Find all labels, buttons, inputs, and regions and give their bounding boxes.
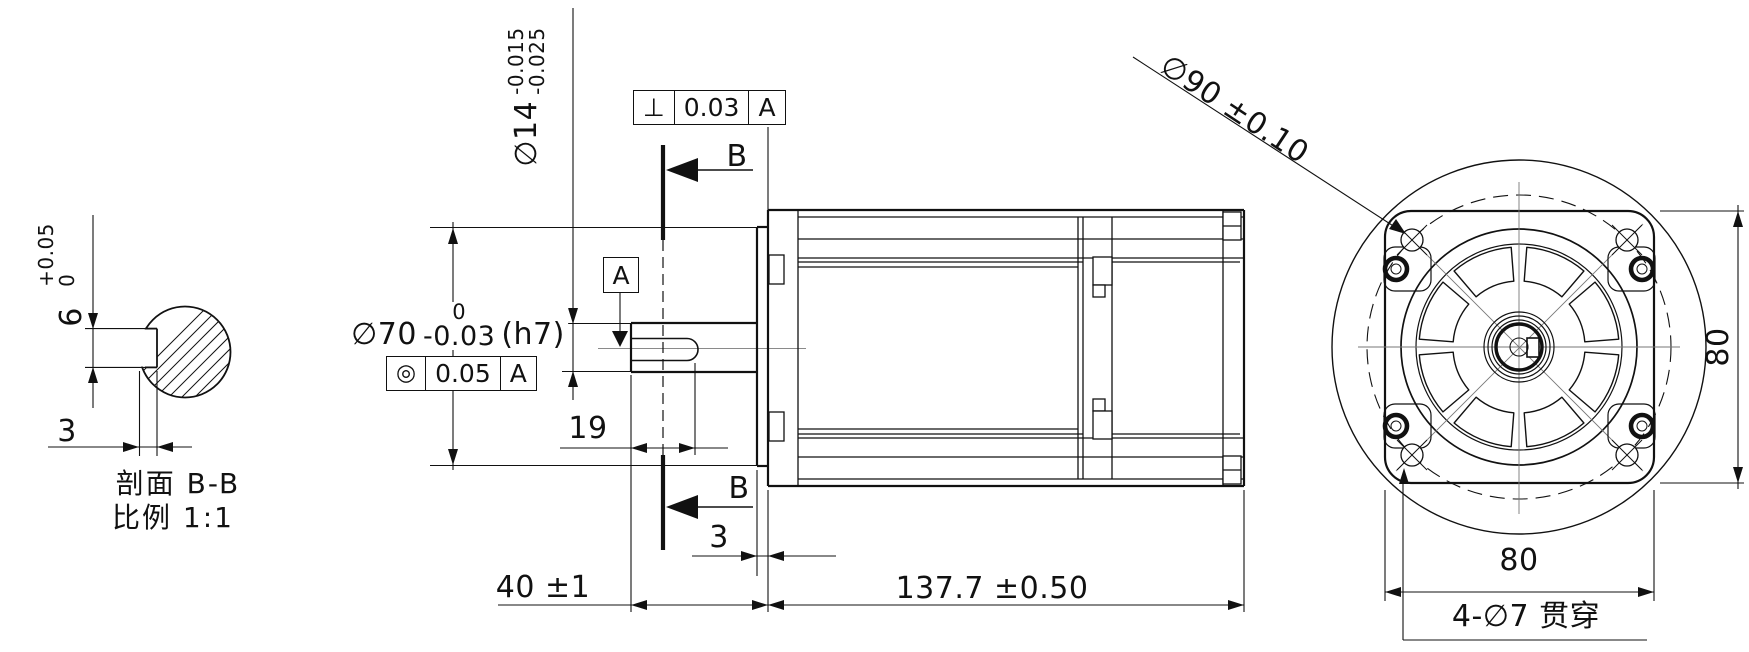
section-keyway-mask bbox=[110, 329, 157, 366]
flange-height-dim: 80 bbox=[1704, 327, 1734, 366]
shaft-length-dim: 40 ±1 bbox=[496, 573, 590, 603]
pilot-dia-fit: (h7) bbox=[501, 320, 565, 350]
section-scale: 比例 1:1 bbox=[112, 504, 234, 532]
tol-upper: -0.015 bbox=[506, 27, 527, 94]
tol-lower: -0.03 bbox=[423, 323, 495, 350]
shaft-dia-nominal: ∅14 bbox=[512, 101, 542, 167]
hub-keyway bbox=[1527, 338, 1539, 357]
drawing-linework bbox=[0, 0, 1749, 652]
pilot-dia-nominal: ∅70 bbox=[351, 320, 417, 350]
shaft-dia-dim: ∅14 -0.015 -0.025 bbox=[506, 27, 548, 166]
keyway-width-tolerance: +0.05 0 bbox=[36, 223, 78, 287]
concentricity-datum: A bbox=[501, 357, 536, 390]
mounting-holes-note: 4-∅7 贯穿 bbox=[1452, 602, 1600, 632]
shaft-outline bbox=[631, 323, 757, 372]
body-length-dim: 137.7 ±0.50 bbox=[896, 574, 1089, 604]
tol-lower: -0.025 bbox=[527, 27, 548, 94]
keyway-depth-dim: 3 bbox=[57, 417, 77, 447]
section-marker-bottom: B bbox=[728, 474, 749, 504]
concentricity-value: 0.05 bbox=[426, 357, 501, 390]
flange-width-dim: 80 bbox=[1499, 546, 1538, 576]
perpendicularity-value: 0.03 bbox=[675, 91, 750, 124]
perpendicularity-icon: ⊥ bbox=[634, 91, 675, 124]
concentricity-icon: ◎ bbox=[387, 357, 426, 390]
tol-lower: 0 bbox=[57, 274, 78, 287]
tol-upper: +0.05 bbox=[36, 223, 57, 287]
tol-upper: 0 bbox=[452, 302, 466, 323]
perpendicularity-datum: A bbox=[749, 91, 784, 124]
pilot-protrusion-dim: 3 bbox=[709, 523, 729, 553]
keyway-length-dim: 19 bbox=[568, 414, 607, 444]
datum-a-flag: A bbox=[603, 257, 639, 293]
keyway-width-dim: 6 bbox=[57, 307, 87, 327]
motor-body-outline bbox=[757, 210, 1244, 486]
motor-body-details bbox=[769, 210, 1244, 486]
concentricity-frame: ◎ 0.05 A bbox=[386, 356, 537, 391]
engineering-drawing: +0.05 0 6 3 剖面 B-B 比例 1:1 ∅14 -0.015 -0.… bbox=[0, 0, 1749, 652]
perpendicularity-frame: ⊥ 0.03 A bbox=[633, 90, 786, 125]
pilot-dia-dim: ∅70 0 -0.03 (h7) bbox=[348, 302, 568, 350]
shaft-keyway-slot bbox=[631, 339, 698, 361]
section-marker-top: B bbox=[726, 142, 747, 172]
section-title: 剖面 B-B bbox=[116, 470, 240, 498]
